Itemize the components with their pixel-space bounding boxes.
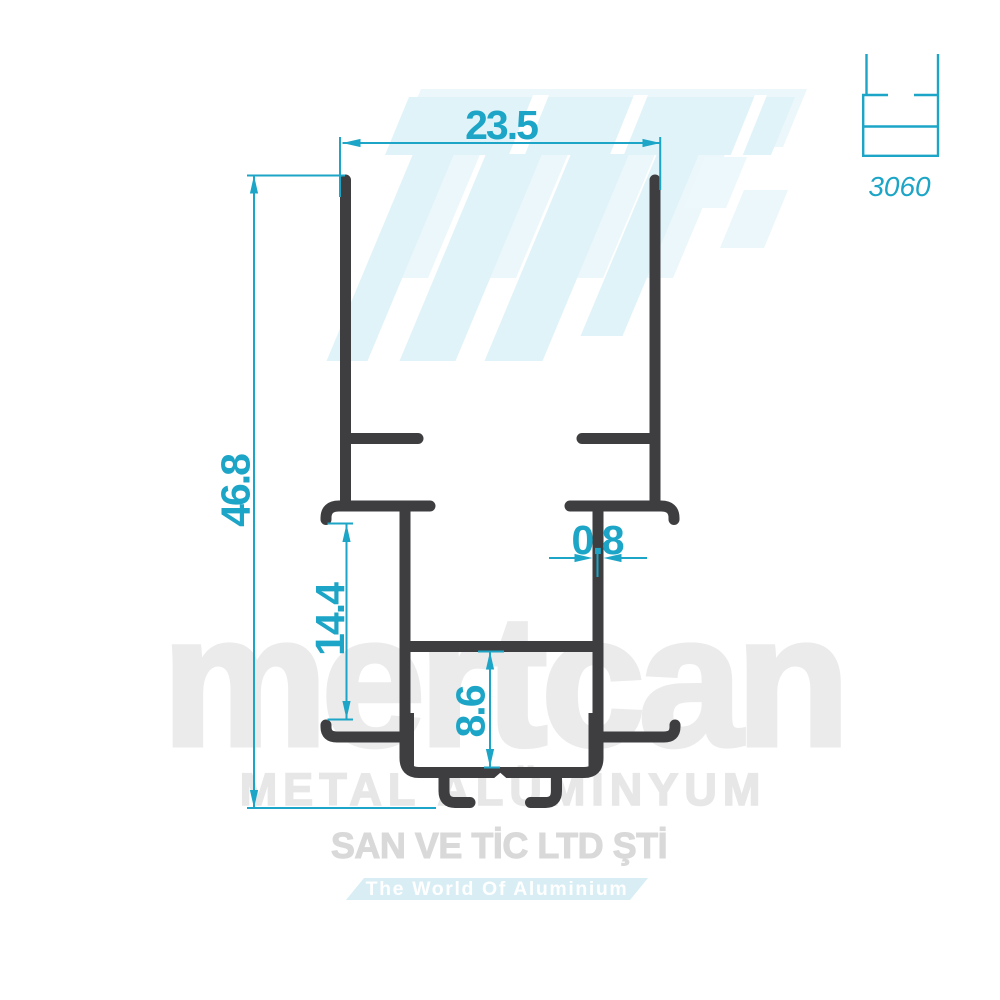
svg-text:8.6: 8.6 bbox=[448, 685, 494, 737]
svg-text:The World Of Aluminium: The World Of Aluminium bbox=[366, 878, 629, 900]
svg-text:14.4: 14.4 bbox=[307, 582, 353, 656]
svg-text:23.5: 23.5 bbox=[465, 102, 538, 148]
svg-text:SAN VE TİC LTD ŞTİ: SAN VE TİC LTD ŞTİ bbox=[331, 825, 667, 866]
svg-text:3060: 3060 bbox=[868, 171, 931, 202]
svg-text:0.8: 0.8 bbox=[572, 517, 624, 563]
svg-text:mertcan: mertcan bbox=[162, 578, 844, 785]
svg-text:46.8: 46.8 bbox=[213, 454, 259, 527]
